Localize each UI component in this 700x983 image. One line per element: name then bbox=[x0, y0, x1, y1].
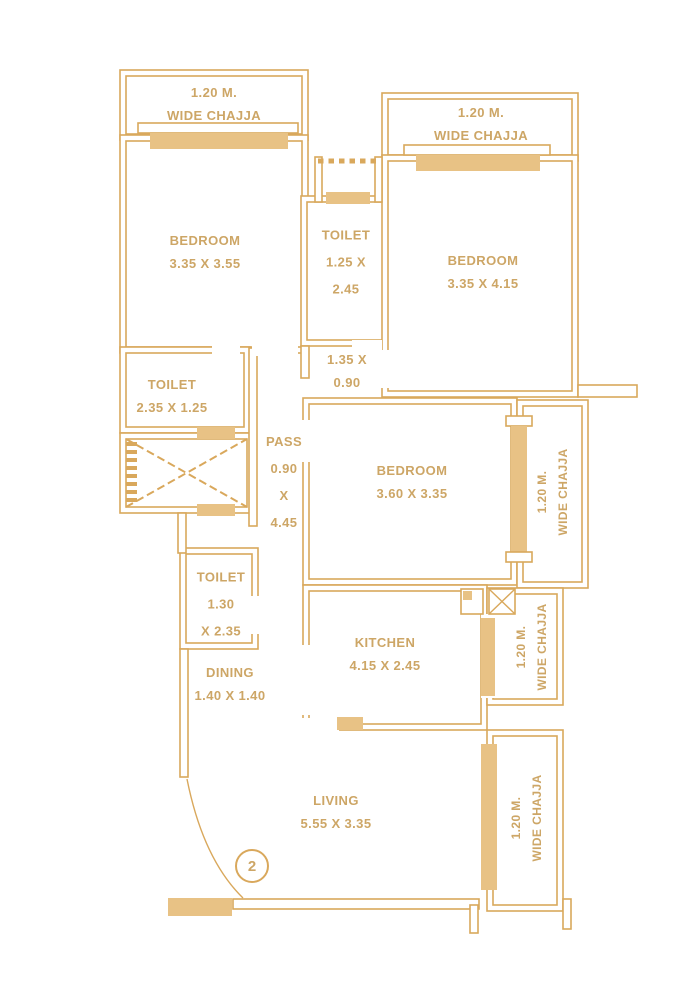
chajja-line: 1.20 M. bbox=[532, 448, 553, 535]
room-dims: 3.35 X 3.55 bbox=[170, 252, 241, 275]
room-name: LIVING bbox=[301, 789, 372, 812]
chajja-line: WIDE CHAJJA bbox=[167, 104, 261, 127]
chajja-line: WIDE CHAJJA bbox=[527, 774, 548, 861]
chajja-bottom-right-label: 1.20 M. WIDE CHAJJA bbox=[506, 774, 548, 861]
chajja-line: 1.20 M. bbox=[434, 101, 528, 124]
chajja-mid-right-label: 1.20 M. WIDE CHAJJA bbox=[532, 448, 574, 535]
floor-plan: 1.20 M. WIDE CHAJJA 1.20 M. WIDE CHAJJA … bbox=[0, 0, 700, 983]
room-name: TOILET bbox=[137, 373, 208, 396]
room-name: KITCHEN bbox=[350, 631, 421, 654]
room-dims: 5.55 X 3.35 bbox=[301, 812, 372, 835]
room-dims: 3.35 X 4.15 bbox=[448, 272, 519, 295]
toilet-top-label: TOILET 1.25 X 2.45 bbox=[322, 222, 370, 303]
room-dims: 4.45 bbox=[266, 509, 302, 536]
room-dims: 1.30 bbox=[197, 591, 245, 618]
unit-number: 2 bbox=[248, 858, 256, 875]
room-name: TOILET bbox=[197, 564, 245, 591]
room-name: PASS bbox=[266, 428, 302, 455]
room-dims: X bbox=[266, 482, 302, 509]
chajja-line: 1.20 M. bbox=[511, 603, 532, 690]
room-dims: 3.60 X 3.35 bbox=[377, 482, 448, 505]
room-dims: X 2.35 bbox=[197, 618, 245, 645]
room-dims: 2.45 bbox=[322, 276, 370, 303]
bedroom-top-right-label: BEDROOM 3.35 X 4.15 bbox=[448, 249, 519, 295]
kitchen-label: KITCHEN 4.15 X 2.45 bbox=[350, 631, 421, 677]
bedroom-top-left-label: BEDROOM 3.35 X 3.55 bbox=[170, 229, 241, 275]
room-dims: 0.90 bbox=[327, 371, 367, 394]
chajja-line: WIDE CHAJJA bbox=[553, 448, 574, 535]
room-dims: 1.25 X bbox=[322, 249, 370, 276]
chajja-line: WIDE CHAJJA bbox=[532, 603, 553, 690]
chajja-line: WIDE CHAJJA bbox=[434, 124, 528, 147]
room-dims: 1.40 X 1.40 bbox=[195, 684, 266, 707]
bedroom-mid-label: BEDROOM 3.60 X 3.35 bbox=[377, 459, 448, 505]
room-dims: 2.35 X 1.25 bbox=[137, 396, 208, 419]
unit-number-badge: 2 bbox=[235, 849, 269, 883]
room-name: DINING bbox=[195, 661, 266, 684]
room-dims: 0.90 bbox=[266, 455, 302, 482]
chajja-kitchen-label: 1.20 M. WIDE CHAJJA bbox=[511, 603, 553, 690]
chajja-top-left-label: 1.20 M. WIDE CHAJJA bbox=[167, 81, 261, 127]
room-name: TOILET bbox=[322, 222, 370, 249]
room-name: BEDROOM bbox=[448, 249, 519, 272]
toilet-lower-label: TOILET 1.30 X 2.35 bbox=[197, 564, 245, 645]
room-name: BEDROOM bbox=[170, 229, 241, 252]
room-dims: 4.15 X 2.45 bbox=[350, 654, 421, 677]
floor-plan-drawing bbox=[0, 0, 700, 983]
dining-label: DINING 1.40 X 1.40 bbox=[195, 661, 266, 707]
living-label: LIVING 5.55 X 3.35 bbox=[301, 789, 372, 835]
room-name: BEDROOM bbox=[377, 459, 448, 482]
entrance-door-arc bbox=[187, 779, 243, 898]
toilet-left-label: TOILET 2.35 X 1.25 bbox=[137, 373, 208, 419]
chajja-top-right-label: 1.20 M. WIDE CHAJJA bbox=[434, 101, 528, 147]
pass-label: PASS 0.90 X 4.45 bbox=[266, 428, 302, 536]
chajja-line: 1.20 M. bbox=[167, 81, 261, 104]
room-dims: 1.35 X bbox=[327, 348, 367, 371]
lobby-dims-label: 1.35 X 0.90 bbox=[327, 348, 367, 394]
chajja-line: 1.20 M. bbox=[506, 774, 527, 861]
